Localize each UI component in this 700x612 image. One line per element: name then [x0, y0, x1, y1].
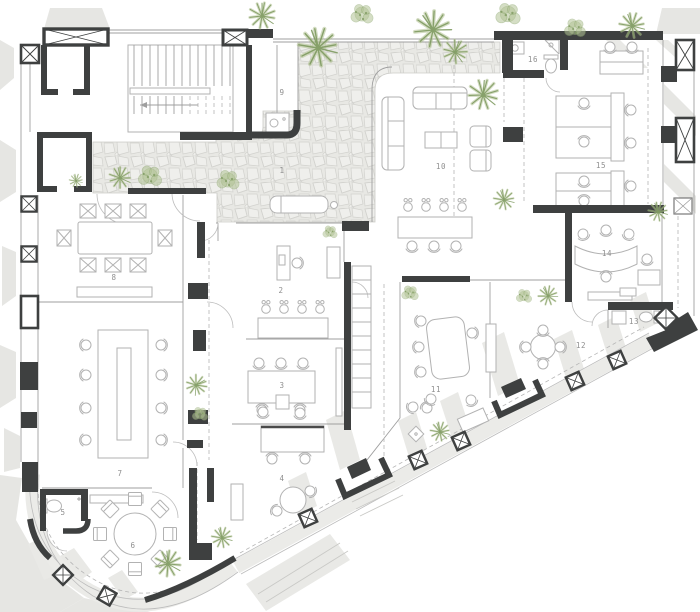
room-label-15: 15 — [596, 161, 606, 170]
room-label-10: 10 — [436, 162, 446, 171]
plant-icon — [494, 190, 514, 210]
room-9-sink — [266, 113, 289, 133]
plant-icon — [496, 4, 520, 24]
plant-icon — [212, 528, 232, 548]
floor-plan: 1 2 3 4 5 6 7 8 9 10 11 12 13 14 15 16 — [0, 0, 700, 612]
shaft-walls — [37, 45, 92, 192]
plant-icon — [323, 226, 337, 238]
room-label-14: 14 — [602, 249, 612, 258]
room-label-16: 16 — [528, 55, 538, 64]
floor-plan-svg: 1 2 3 4 5 6 7 8 9 10 11 12 13 14 15 16 — [0, 0, 700, 612]
plant-icon — [565, 19, 586, 37]
plant-icon — [351, 5, 373, 24]
shelving-unit — [352, 266, 371, 408]
room-label-8: 8 — [111, 273, 116, 282]
room-label-13: 13 — [629, 317, 639, 326]
room-label-12: 12 — [576, 341, 586, 350]
room-7-boardroom — [80, 330, 168, 503]
plant-icon — [430, 422, 449, 440]
plant-icon — [185, 373, 208, 396]
plant-icon — [516, 289, 531, 302]
room-label-7: 7 — [117, 469, 122, 478]
room-8-conference — [57, 204, 172, 297]
plant-icon — [537, 285, 559, 306]
room-label-1: 1 — [279, 166, 284, 175]
room-14-meeting — [575, 225, 660, 300]
plant-icon — [402, 286, 419, 300]
room-label-4: 4 — [279, 474, 284, 483]
staircase — [128, 45, 233, 132]
room-label-2: 2 — [278, 286, 283, 295]
room-2-office — [258, 246, 340, 338]
plant-icon — [69, 174, 82, 187]
stair-direction-arrow — [140, 102, 147, 108]
wall-hatch-block — [44, 29, 247, 45]
plant-icon — [245, 0, 278, 32]
room-label-6: 6 — [130, 541, 135, 550]
room-label-3: 3 — [279, 381, 284, 390]
toilet-icon — [544, 55, 558, 73]
plant-icon — [192, 407, 207, 420]
room-label-5: 5 — [60, 508, 65, 517]
room-3-meeting — [248, 348, 342, 416]
room-label-11: 11 — [431, 385, 441, 394]
room-15-open-office — [556, 42, 643, 211]
room-label-9: 9 — [279, 88, 284, 97]
plant-icon — [464, 75, 503, 114]
